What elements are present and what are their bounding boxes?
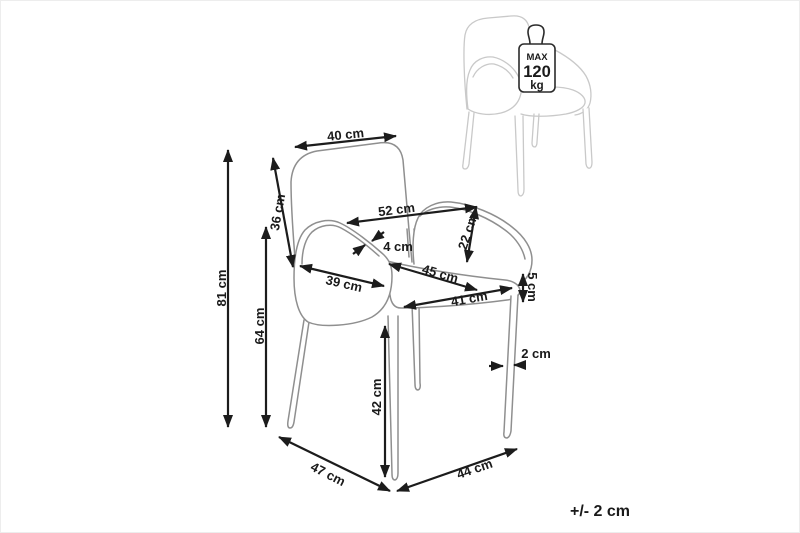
dimension-label-44cm: 44 cm xyxy=(455,456,495,482)
dimension-leg-thickness: 2 cm xyxy=(489,346,551,366)
dimension-diagram: MAX 120 kg 40 cm 36 cm 81 cm xyxy=(0,0,800,533)
dimension-total-height: 81 cm xyxy=(214,150,229,427)
dimension-armrest-height: 64 cm xyxy=(252,227,267,427)
dimension-label-4cm: 4 cm xyxy=(383,239,413,254)
max-weight-value: 120 xyxy=(523,63,551,81)
max-weight-icon xyxy=(528,25,544,44)
dimension-seat-height: 42 cm xyxy=(369,326,385,477)
dimension-label-47cm: 47 cm xyxy=(308,459,348,489)
max-weight-prefix: MAX xyxy=(526,52,548,63)
tolerance-note: +/- 2 cm xyxy=(570,503,630,520)
reference-chair-drawing xyxy=(463,16,592,196)
max-weight-unit: kg xyxy=(530,80,543,92)
dimension-base-depth: 47 cm xyxy=(279,437,390,491)
chair-back-left-leg xyxy=(288,320,309,428)
reference-chair-front-left-leg xyxy=(515,116,524,196)
dimension-label-64cm: 64 cm xyxy=(252,308,267,345)
reference-chair-back-left-leg xyxy=(463,112,474,169)
main-chair-drawing xyxy=(288,143,532,480)
max-weight-badge: MAX 120 kg xyxy=(519,25,555,92)
reference-chair-back-right-leg xyxy=(532,114,539,147)
dimension-base-width: 44 cm xyxy=(397,449,517,491)
diagram-canvas: MAX 120 kg 40 cm 36 cm 81 cm xyxy=(0,0,800,533)
reference-chair-left-armrest xyxy=(467,57,522,115)
dimension-label-5cm: 5 cm xyxy=(525,272,540,302)
chair-back-right-leg xyxy=(412,304,420,390)
reference-chair-front-right-leg xyxy=(583,108,592,168)
dimension-seat-edge-thickness: 5 cm xyxy=(523,272,540,302)
reference-chair-right-side xyxy=(555,50,591,115)
dimension-backrest-height: 36 cm xyxy=(267,158,293,267)
dimension-label-42cm: 42 cm xyxy=(369,379,384,416)
dimension-label-81cm: 81 cm xyxy=(214,270,229,307)
chair-front-right-leg xyxy=(504,295,518,438)
dimension-label-2cm: 2 cm xyxy=(521,346,551,361)
chair-front-left-leg xyxy=(388,316,398,480)
